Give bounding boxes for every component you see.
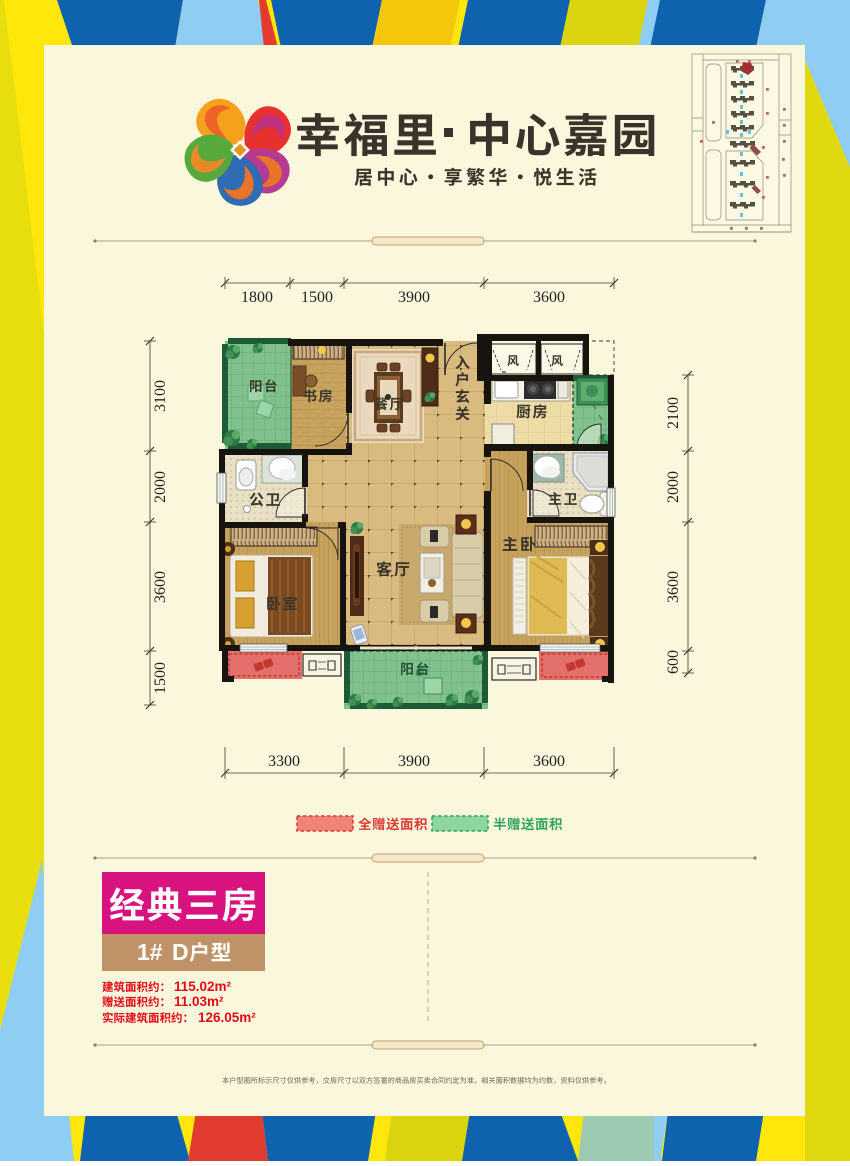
svg-text:3100: 3100 (152, 380, 169, 412)
svg-text:3600: 3600 (533, 289, 565, 306)
svg-text:1800: 1800 (241, 289, 273, 306)
svg-text:3600: 3600 (665, 571, 682, 603)
svg-text:2000: 2000 (665, 471, 682, 503)
svg-text:3900: 3900 (398, 753, 430, 770)
svg-text:3300: 3300 (268, 753, 300, 770)
svg-text:126.05m²: 126.05m² (198, 1010, 256, 1025)
svg-text:1500: 1500 (301, 289, 333, 306)
svg-text:11.03m²: 11.03m² (174, 994, 224, 1009)
svg-text:1#: 1# (137, 939, 163, 965)
svg-text:600: 600 (665, 650, 682, 674)
svg-text:D: D (172, 939, 189, 965)
svg-text:2000: 2000 (152, 471, 169, 503)
svg-text:1500: 1500 (152, 662, 169, 694)
svg-text:115.02m²: 115.02m² (174, 979, 232, 994)
svg-text:2100: 2100 (665, 397, 682, 429)
svg-text:3900: 3900 (398, 289, 430, 306)
svg-text:3600: 3600 (152, 571, 169, 603)
svg-text:3600: 3600 (533, 753, 565, 770)
